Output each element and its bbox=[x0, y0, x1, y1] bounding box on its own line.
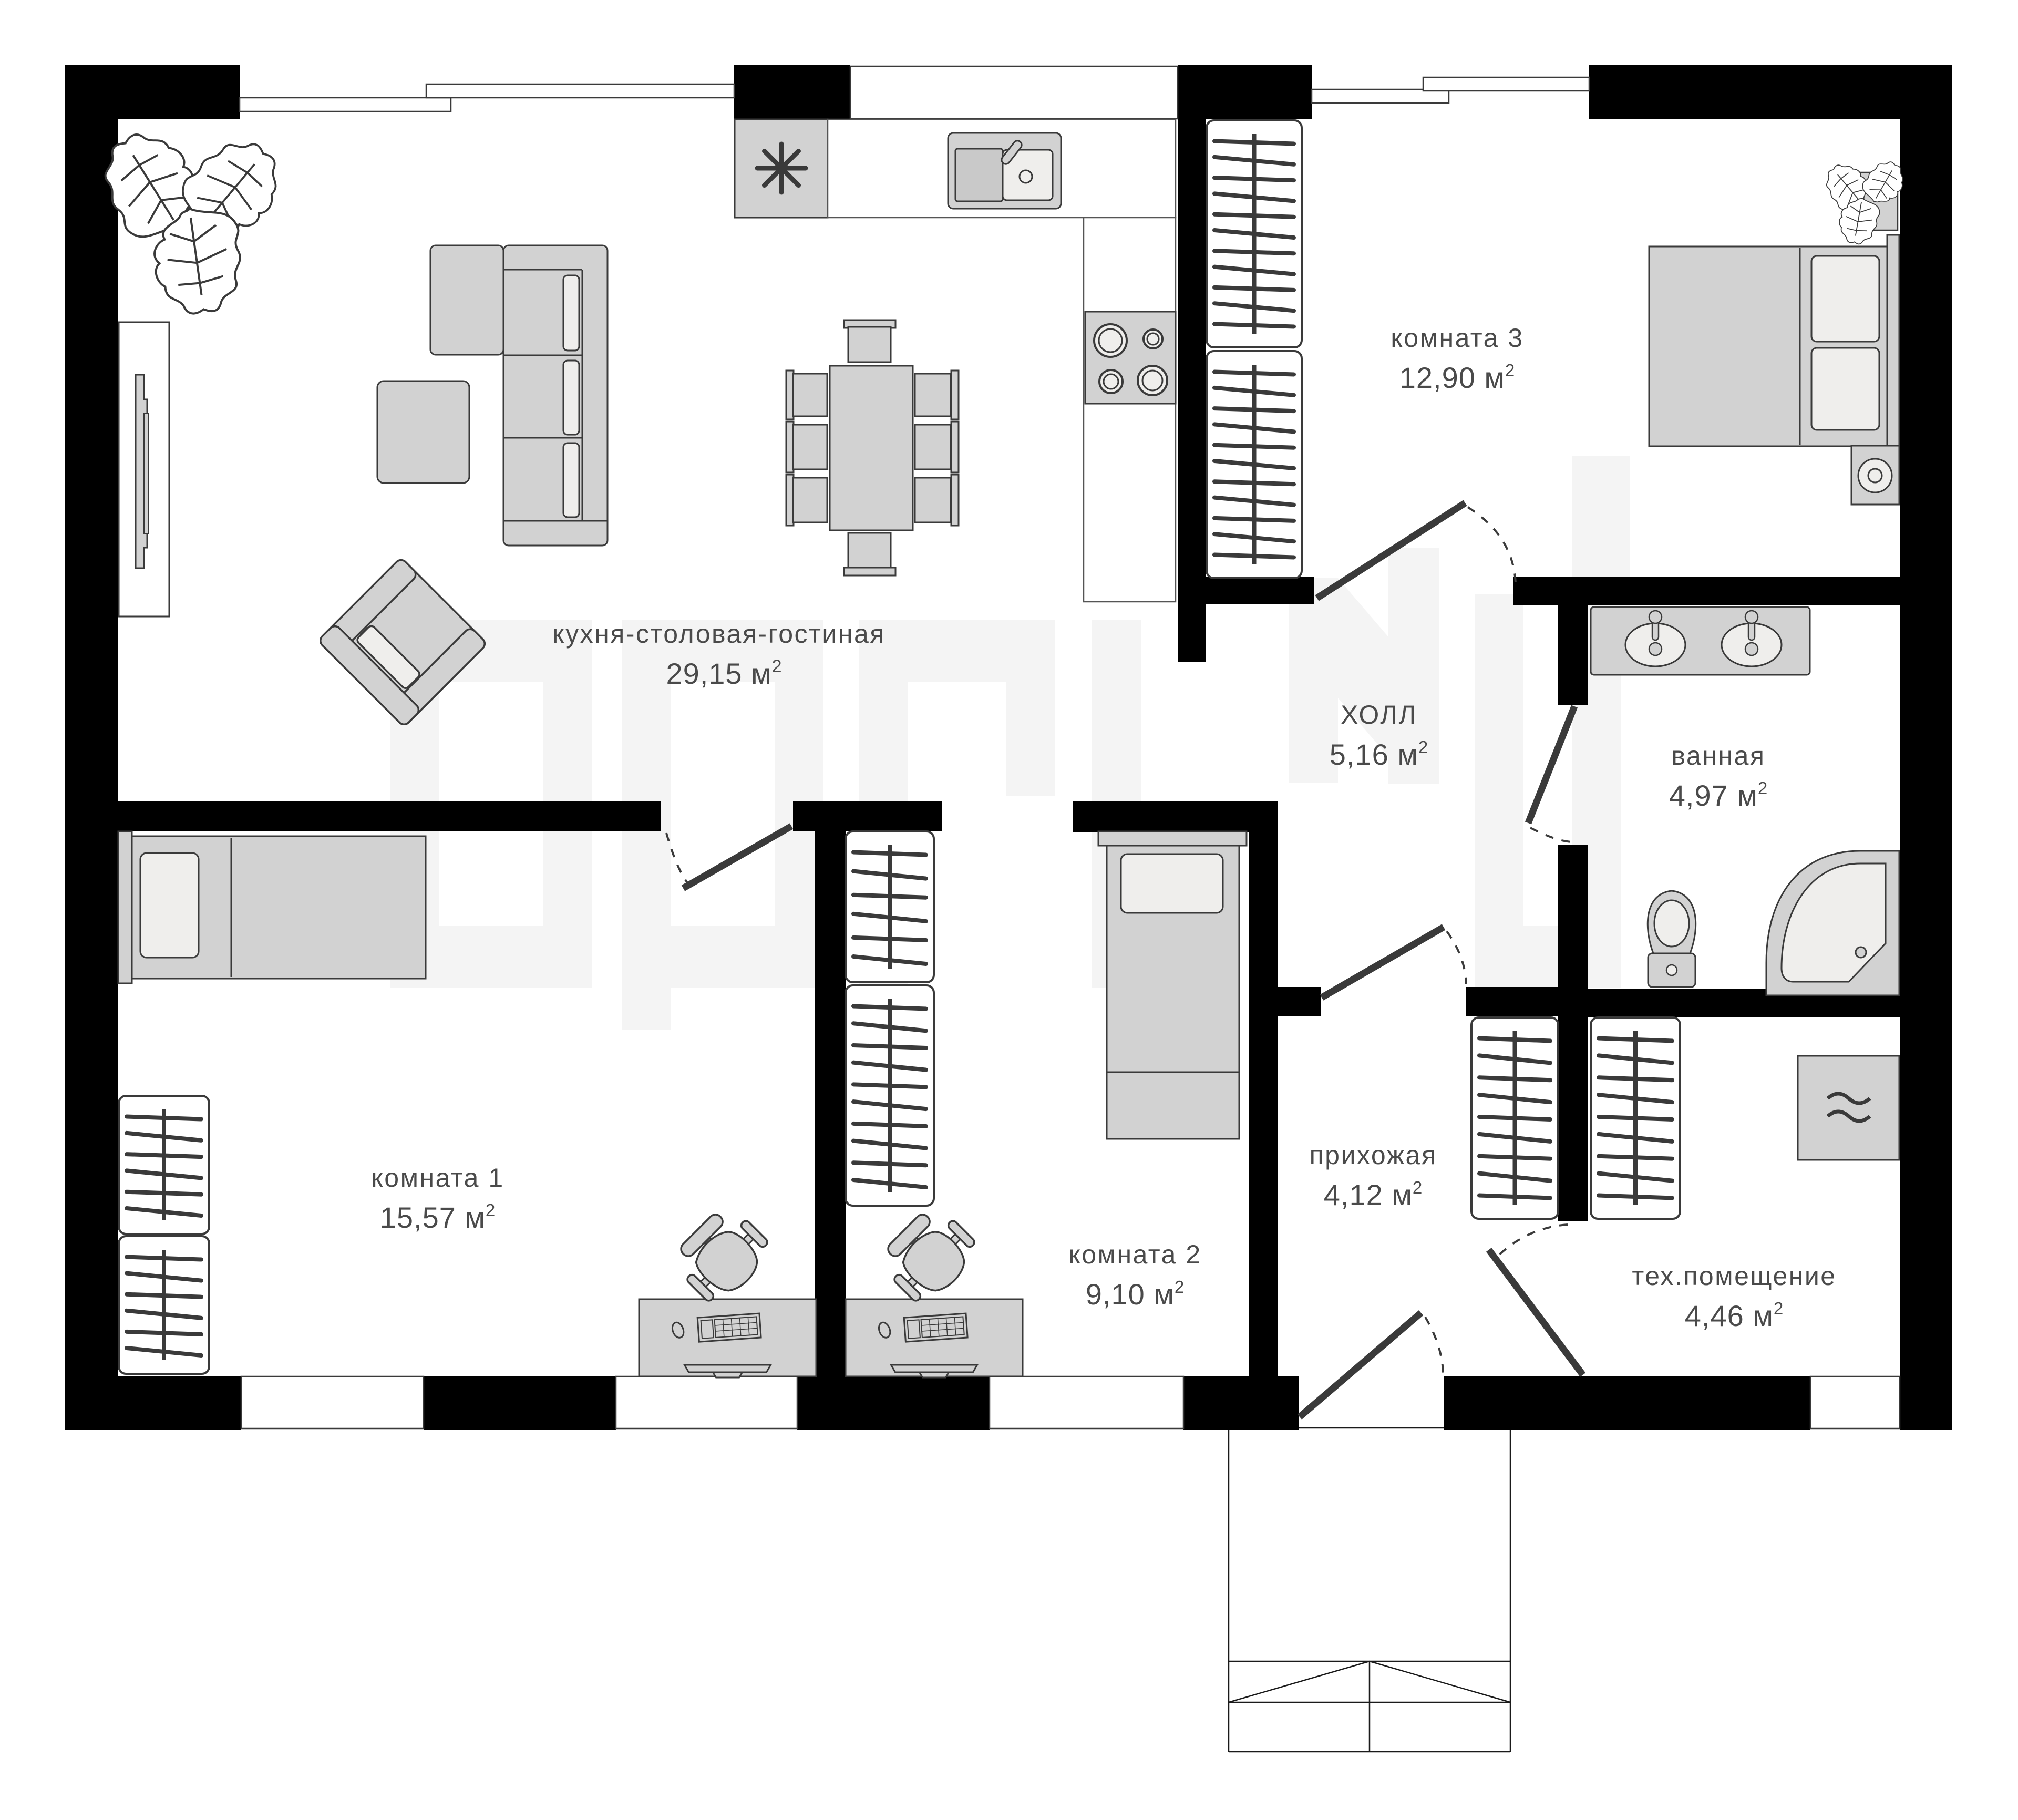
svg-text:12,90 м2: 12,90 м2 bbox=[1399, 361, 1516, 394]
svg-text:комната 2: комната 2 bbox=[1068, 1240, 1201, 1269]
svg-text:4,97 м2: 4,97 м2 bbox=[1669, 778, 1768, 812]
svg-text:5,16 м2: 5,16 м2 bbox=[1330, 737, 1428, 771]
svg-text:9,10 м2: 9,10 м2 bbox=[1086, 1277, 1185, 1311]
svg-text:комната 3: комната 3 bbox=[1391, 323, 1523, 353]
svg-text:тех.помещение: тех.помещение bbox=[1632, 1261, 1836, 1291]
svg-text:ХОЛЛ: ХОЛЛ bbox=[1341, 700, 1417, 729]
svg-text:кухня-столовая-гостиная: кухня-столовая-гостиная bbox=[552, 619, 886, 649]
svg-text:комната 1: комната 1 bbox=[371, 1163, 504, 1192]
svg-text:ванная: ванная bbox=[1672, 741, 1766, 770]
svg-text:4,46 м2: 4,46 м2 bbox=[1685, 1299, 1784, 1332]
svg-text:4,12 м2: 4,12 м2 bbox=[1324, 1178, 1423, 1211]
svg-text:прихожая: прихожая bbox=[1310, 1140, 1437, 1170]
svg-text:29,15 м2: 29,15 м2 bbox=[666, 656, 782, 690]
svg-text:15,57 м2: 15,57 м2 bbox=[380, 1200, 496, 1234]
